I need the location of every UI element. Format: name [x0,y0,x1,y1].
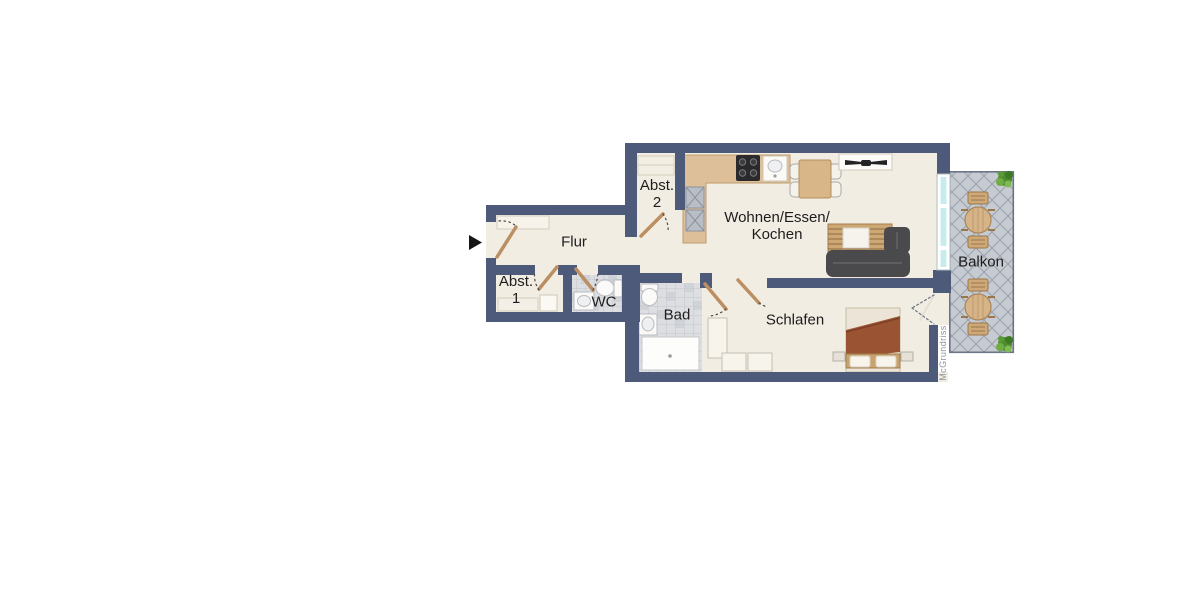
room-label-balkon: Balkon [958,254,1004,271]
room-label-abst1: Abst. 1 [499,273,533,307]
room-label-abst2-line2: 2 [640,194,674,211]
entry-arrow-icon [469,235,482,250]
kitchen-sink-icon [763,156,787,181]
toilet-icon [641,284,658,306]
room-label-abst1-line1: Abst. [499,273,533,290]
shower [642,337,699,370]
room-label-bad: Bad [664,307,691,324]
room-label-abst2: Abst. 2 [640,177,674,211]
window [937,174,950,270]
dining-set [790,160,841,198]
room-label-wohnen-line1: Wohnen/Essen/ [724,209,830,226]
plant-icon [996,336,1013,353]
stove-icon [736,155,760,181]
room-label-abst2-line1: Abst. [640,177,674,194]
room-label-abst1-line2: 1 [499,290,533,307]
appliance-icon [686,187,704,208]
room-label-wohnen: Wohnen/Essen/ Kochen [724,209,830,243]
washbasin-icon [639,314,657,335]
room-label-wohnen-line2: Kochen [724,226,830,243]
room-label-wc: WC [592,294,617,311]
room-label-schlafen: Schlafen [766,312,824,329]
appliance-icon [686,210,704,231]
hall-wardrobe [497,216,549,229]
storage1-cabinet [540,295,557,311]
tv-icon [839,154,892,170]
storage2-shelf [638,156,674,175]
plant-icon [996,171,1013,188]
room-label-flur: Flur [561,234,587,251]
sideboard [828,224,892,253]
watermark-text: McGrundriss [938,325,948,380]
floorplan-canvas: Flur Abst. 2 Abst. 1 WC Bad Wohnen/Essen… [0,0,1200,600]
